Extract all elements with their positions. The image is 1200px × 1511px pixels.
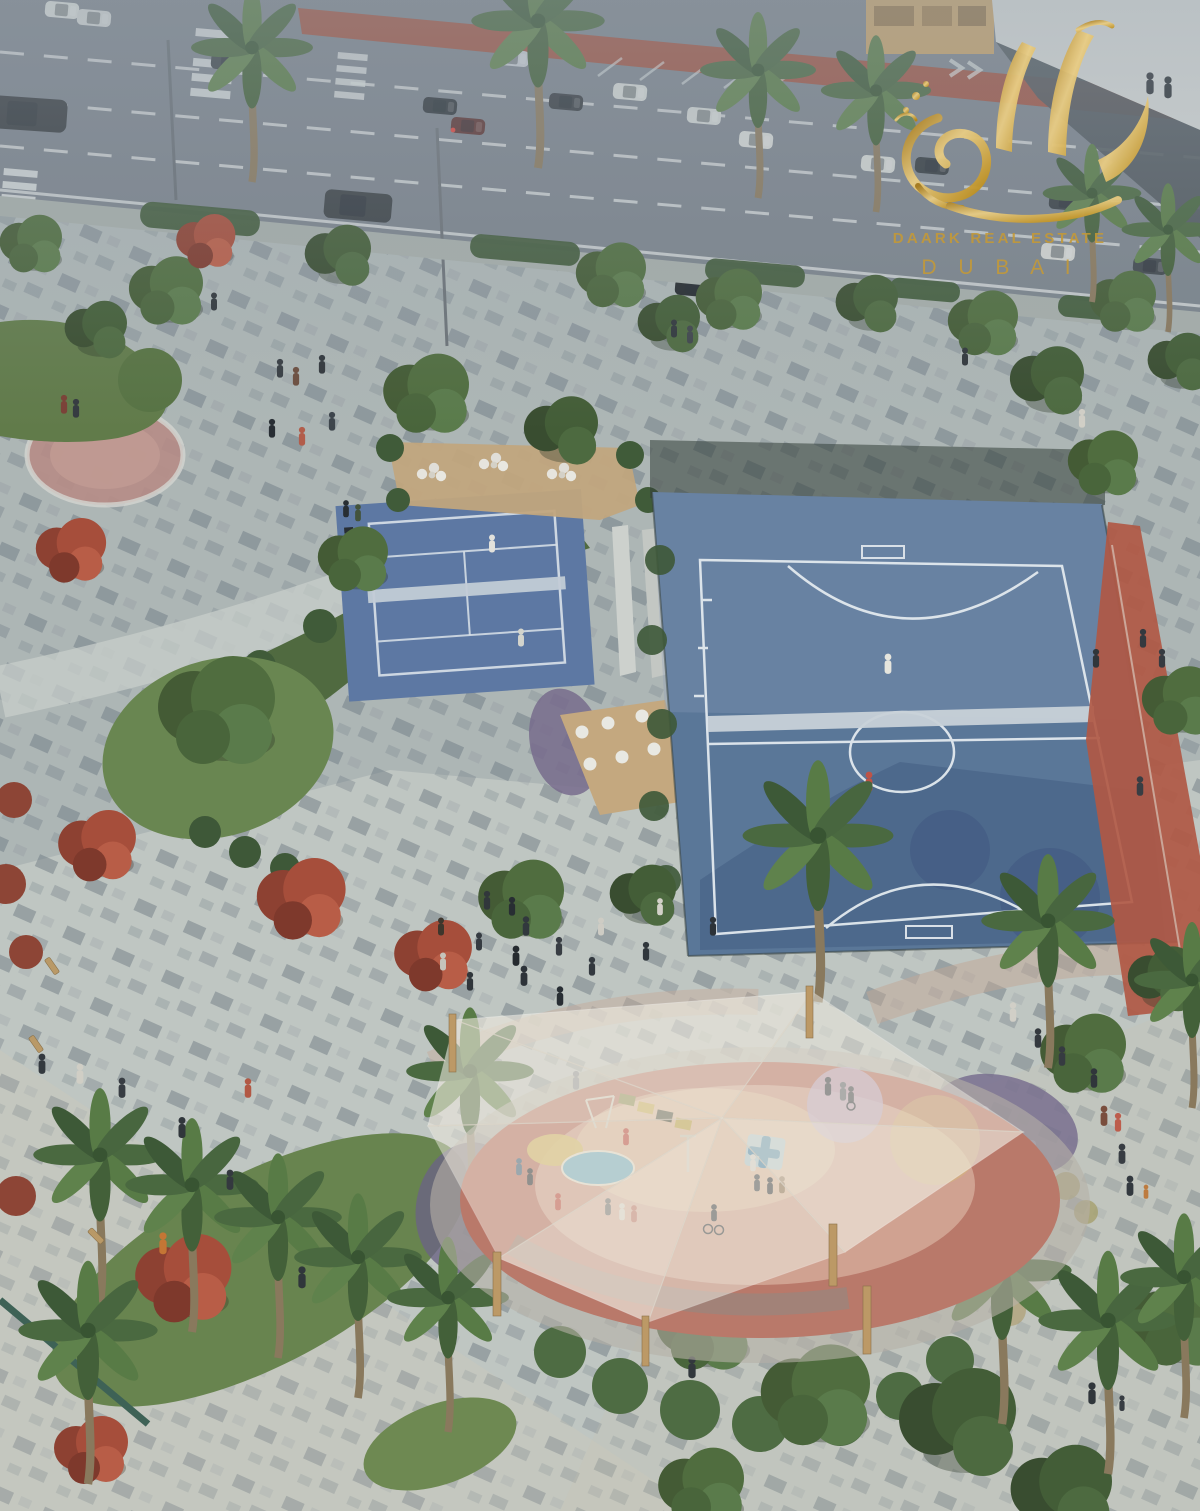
tone-overlay xyxy=(0,0,1200,1511)
watermark-city: D U B A I xyxy=(921,256,1078,279)
watermark-brand-name: DAARK REAL ESTATE xyxy=(893,230,1107,247)
screenshot-canvas: DAARK REAL ESTATE D U B A I xyxy=(0,0,1200,1511)
aerial-park-render: DAARK REAL ESTATE D U B A I xyxy=(0,0,1200,1511)
